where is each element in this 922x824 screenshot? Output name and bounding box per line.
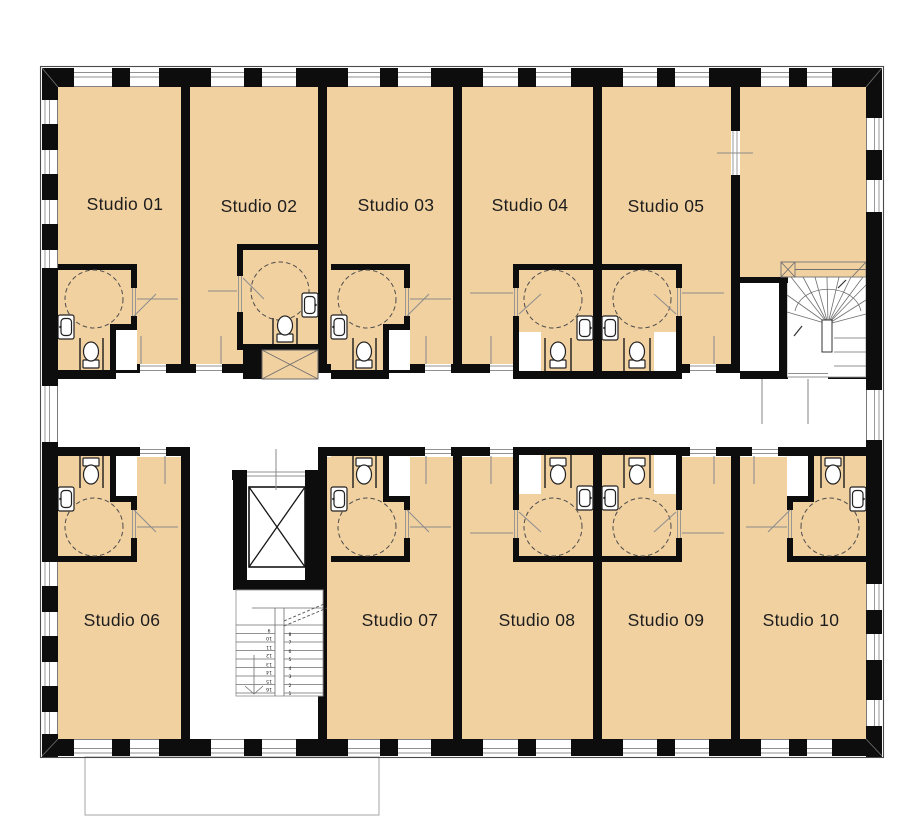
step-number: 1 <box>289 691 292 697</box>
step-number: 7 <box>289 640 292 646</box>
step-number: 3 <box>289 674 292 680</box>
step-number: 6 <box>289 649 292 655</box>
floor-plan: Studio 01 Studio 02 Studio 03 Studio 04 … <box>0 0 922 824</box>
step-number: 2 <box>289 683 292 689</box>
wall-piers-bottom <box>42 739 882 756</box>
wall-piers-left <box>42 68 58 758</box>
stair-hall-floor <box>740 262 781 277</box>
step-number: 12 <box>266 652 272 658</box>
studio-02-label: Studio 02 <box>221 196 298 216</box>
step-number: 14 <box>266 669 272 675</box>
studio-08-label: Studio 08 <box>499 610 576 630</box>
step-number: 8 <box>289 632 292 638</box>
step-number: 4 <box>289 666 292 672</box>
toilet-icon <box>277 316 293 342</box>
corridor <box>58 373 866 447</box>
sink-icon <box>302 293 318 317</box>
stair-newel <box>822 320 832 352</box>
entrance-canopy <box>85 757 379 815</box>
step-number: 10 <box>266 635 272 641</box>
step-number: 13 <box>266 661 272 667</box>
wall-piers-top <box>42 68 882 87</box>
step-number: 16 <box>266 686 272 692</box>
central-staircase <box>236 590 327 696</box>
studio-01-label: Studio 01 <box>87 194 164 214</box>
step-number: 5 <box>289 657 292 663</box>
winder-staircase <box>740 262 866 378</box>
studio-06-label: Studio 06 <box>84 610 161 630</box>
studio-03-label: Studio 03 <box>358 195 435 215</box>
stair-hall-floor <box>740 87 866 277</box>
studio-10-label: Studio 10 <box>763 610 840 630</box>
step-number: 9 <box>267 627 270 633</box>
studio-09-label: Studio 09 <box>628 610 705 630</box>
studio-05-label: Studio 05 <box>628 196 705 216</box>
studio-04-label: Studio 04 <box>492 195 569 215</box>
wall-piers-right <box>866 68 882 758</box>
step-number: 15 <box>266 678 272 684</box>
step-number: 11 <box>266 644 272 650</box>
elevator-shaft <box>232 449 320 590</box>
windows-right <box>875 118 880 726</box>
floor-plan-drawing: Studio 01 Studio 02 Studio 03 Studio 04 … <box>0 0 922 824</box>
studio-07-label: Studio 07 <box>362 610 439 630</box>
